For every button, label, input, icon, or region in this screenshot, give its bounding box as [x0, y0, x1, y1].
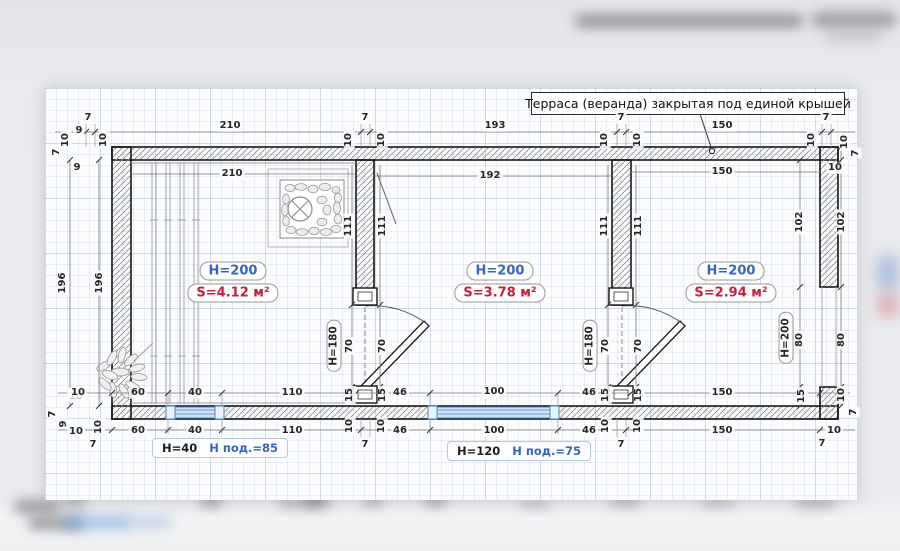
terrace-callout: Терраса (веранда) закрытая под единой кр… [531, 92, 845, 115]
dim-label: 102 [795, 210, 806, 235]
dim-label: 110 [280, 388, 305, 399]
dim-label: 10 [601, 417, 612, 435]
room2-height-label: H=200 [467, 262, 534, 281]
dim-label: 15 [345, 386, 356, 404]
blurred-toolbar-icon [878, 294, 898, 316]
dim-label: 150 [710, 388, 735, 399]
window1-spec-label: H=40Н под.=85 [152, 438, 288, 458]
dim-label: 10 [345, 417, 356, 435]
screenshot-root: { "callout": { "text": "Терраса (веранда… [0, 0, 900, 551]
window2-spec-label: H=120Н под.=75 [447, 441, 591, 461]
dim-label: 7 [817, 439, 828, 450]
blurred-footer-link [63, 514, 133, 530]
dim-label: 10 [344, 131, 355, 149]
dim-label: 110 [280, 426, 305, 437]
blurred-toolbar-icon [878, 256, 898, 290]
dim-label: 46 [391, 426, 409, 437]
dim-label: 10 [840, 133, 851, 151]
dim-label: 15 [797, 387, 808, 405]
dim-label: 7 [48, 409, 59, 420]
room3-height-label: H=200 [698, 262, 765, 281]
dim-label: 80 [795, 331, 806, 349]
dim-label: 15 [601, 386, 612, 404]
dim-label: 80 [837, 331, 848, 349]
dim-label: 100 [482, 387, 507, 398]
dim-label: 7 [851, 148, 862, 159]
dim-label: 10 [67, 427, 85, 438]
dim-label: 46 [580, 426, 598, 437]
dim-label: 10 [377, 417, 388, 435]
room3-area-label: S=2.94 м² [685, 284, 776, 303]
window1-height: H=40 [162, 441, 197, 455]
window2-sill: Н под.=75 [512, 444, 581, 458]
dim-label: 10 [826, 163, 844, 174]
dim-label: 10 [600, 131, 611, 149]
dim-label: 7 [88, 440, 99, 451]
dim-label: 111 [634, 214, 645, 239]
dim-label: 9 [72, 163, 83, 174]
opening-height-label: H=180 [326, 320, 341, 372]
blurred-footer-item [14, 500, 60, 513]
room2-area-label: S=3.78 м² [454, 284, 545, 303]
dim-label: 10 [94, 418, 105, 436]
dim-label: 111 [344, 214, 355, 239]
dim-label: 150 [710, 167, 735, 178]
opening-height-label: H=180 [582, 320, 597, 372]
dim-label: 10 [99, 131, 110, 149]
dim-label: 111 [378, 214, 389, 239]
dim-label: 10 [825, 426, 843, 437]
dim-label: 10 [633, 131, 644, 149]
window1-sill: Н под.=85 [209, 441, 278, 455]
dim-label: 7 [360, 113, 371, 124]
dim-label: 150 [710, 426, 735, 437]
dim-label: 10 [807, 131, 818, 149]
dim-label: 46 [580, 388, 598, 399]
dim-label: 10 [377, 131, 388, 149]
dim-label: 210 [218, 121, 243, 132]
dim-label: 10 [633, 417, 644, 435]
blurred-background-text [824, 32, 882, 41]
dim-label: 15 [378, 386, 389, 404]
dim-label: 196 [95, 271, 106, 296]
dim-label: 70 [378, 337, 389, 355]
dim-label: 70 [601, 337, 612, 355]
dim-label: 7 [616, 440, 627, 451]
dim-label: 7 [616, 113, 627, 124]
blurred-footer-link [132, 516, 172, 528]
dim-label: 10 [837, 386, 848, 404]
dim-label: 40 [186, 426, 204, 437]
dim-label: 70 [345, 337, 356, 355]
dim-label: 60 [129, 426, 147, 437]
room1-height-label: H=200 [200, 262, 267, 281]
room1-area-label: S=4.12 м² [187, 284, 278, 303]
dim-label: 60 [129, 388, 147, 399]
dim-label: 111 [600, 214, 611, 239]
blurred-background-text [812, 12, 896, 27]
dim-label: 102 [837, 210, 848, 235]
dim-label: 196 [58, 271, 69, 296]
dim-label: 210 [220, 169, 245, 180]
dim-label: 150 [710, 121, 735, 132]
dim-label: 7 [821, 113, 832, 124]
dim-label: 193 [483, 121, 508, 132]
dim-label: 70 [634, 337, 645, 355]
dim-label: 7 [83, 113, 94, 124]
dim-label: 7 [849, 407, 860, 418]
dim-label: 9 [74, 126, 85, 137]
blurred-background-text [575, 14, 803, 28]
opening-height-label: H=200 [778, 312, 793, 364]
dim-label: 10 [61, 131, 72, 149]
dim-label: 15 [634, 386, 645, 404]
terrace-callout-text: Терраса (веранда) закрытая под единой кр… [525, 96, 851, 111]
dim-label: 192 [478, 171, 503, 182]
dim-label: 7 [360, 440, 371, 451]
dim-label: 10 [69, 388, 87, 399]
dim-label: 40 [186, 388, 204, 399]
dim-label: 100 [482, 426, 507, 437]
dim-label: 46 [391, 388, 409, 399]
window2-height: H=120 [457, 444, 500, 458]
